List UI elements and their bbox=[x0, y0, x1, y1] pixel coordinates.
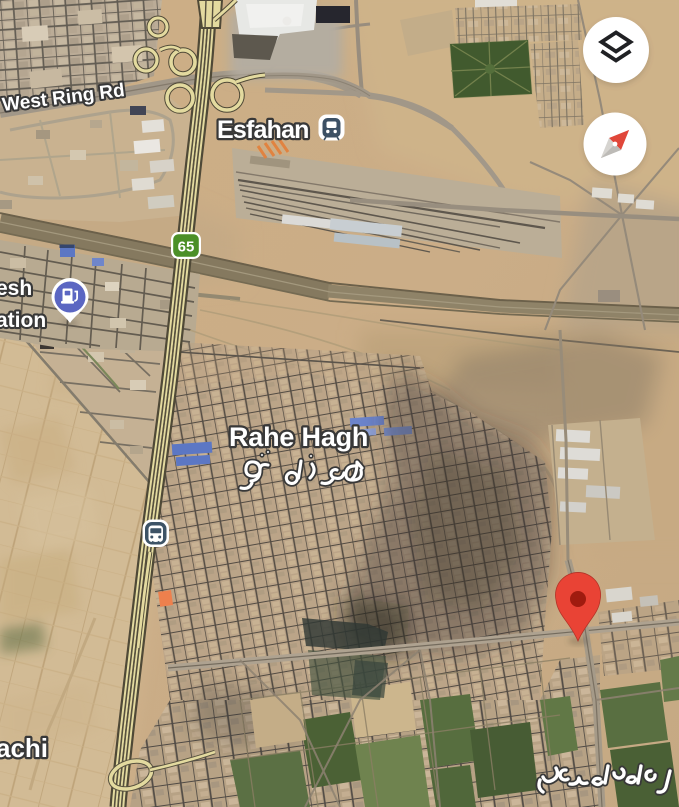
svg-text:achi: achi bbox=[0, 733, 48, 763]
svg-text:ation: ation bbox=[0, 309, 46, 332]
svg-text:esh: esh bbox=[0, 277, 32, 300]
svg-text:Esfahan: Esfahan bbox=[217, 116, 309, 144]
svg-text:65: 65 bbox=[178, 239, 195, 256]
svg-text:Rahe Hagh: Rahe Hagh bbox=[229, 422, 368, 452]
